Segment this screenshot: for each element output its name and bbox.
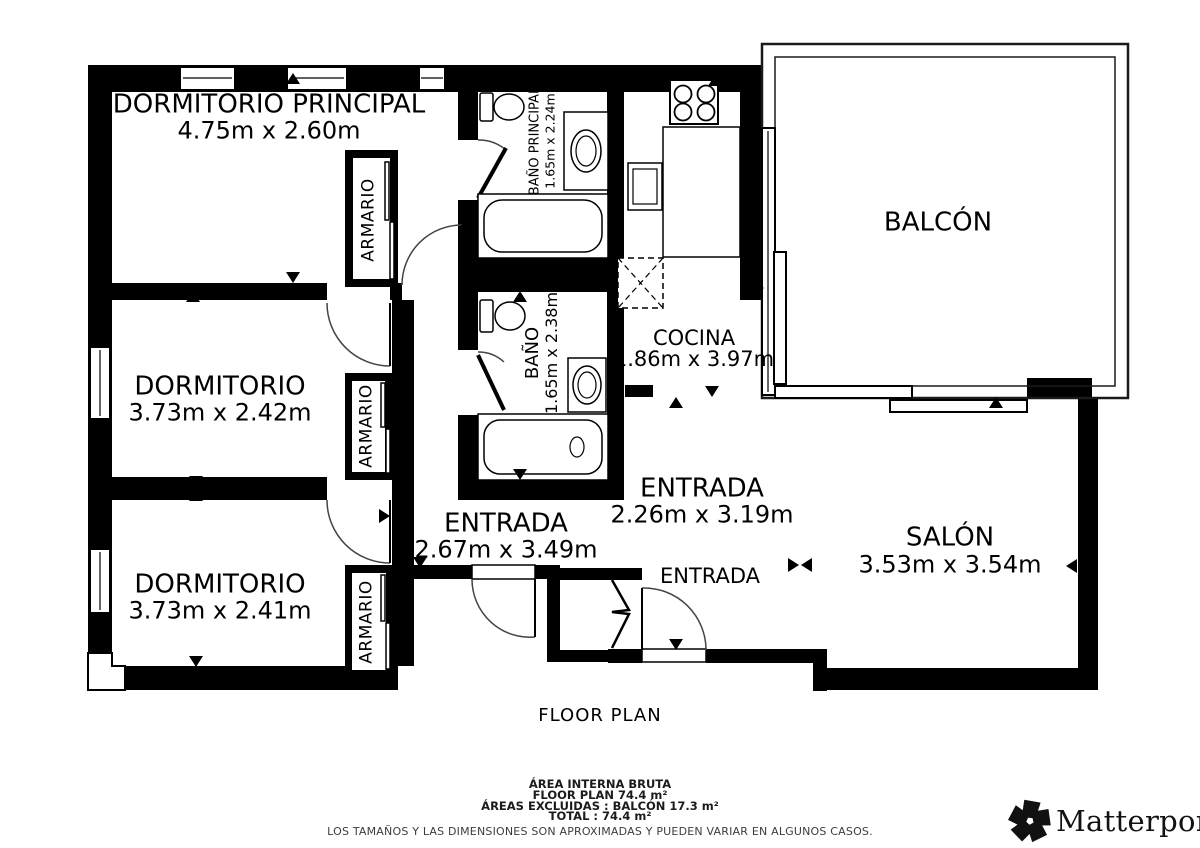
room-label-entrada-centro: ENTRADA (640, 474, 764, 503)
matterport-wordmark: Matterport® (1056, 804, 1200, 838)
bifold-door (612, 580, 629, 648)
toilet (480, 93, 524, 121)
floor-plan-page: DORMITORIO PRINCIPAL 4.75m x 2.60m DORMI… (0, 0, 1200, 848)
closet-label-armario-2: ARMARIO (357, 384, 376, 467)
room-label-dormitorio-principal: DORMITORIO PRINCIPAL (113, 90, 425, 119)
room-dims-cocina: 1.86m x 3.97m (614, 348, 774, 372)
room-label-balcon: BALCÓN (884, 208, 992, 237)
closet-label-armario-1: ARMARIO (359, 178, 378, 261)
sink (568, 358, 606, 412)
bano-name: BAÑO (523, 292, 543, 414)
disclaimer: LOS TAMAÑOS Y LAS DIMENSIONES SON APROXI… (0, 825, 1200, 838)
room-dims-dormitorio-3: 3.73m x 2.41m (128, 598, 311, 625)
room-dims-salon: 3.53m x 3.54m (858, 552, 1041, 579)
room-label-bano: BAÑO 1.65m x 2.38m (523, 292, 561, 414)
floor-plan-title: FLOOR PLAN (538, 706, 661, 726)
bathtub (478, 194, 608, 258)
room-label-dormitorio-2: DORMITORIO (134, 372, 305, 401)
bathtub (478, 414, 608, 480)
room-label-entrada-hall: ENTRADA (444, 509, 568, 538)
toilet (480, 300, 525, 332)
washer-sink (564, 112, 608, 190)
bano-dims: 1.65m x 2.38m (543, 292, 561, 414)
room-label-salon: SALÓN (906, 523, 994, 552)
counter (663, 127, 740, 257)
stove (670, 80, 718, 124)
room-dims-dormitorio-principal: 4.75m x 2.60m (177, 118, 360, 145)
bano-principal-name: BAÑO PRINCIPAL (529, 87, 544, 195)
room-label-dormitorio-3: DORMITORIO (134, 570, 305, 599)
brand-name: Matterport (1056, 804, 1200, 838)
room-dims-dormitorio-2: 3.73m x 2.42m (128, 400, 311, 427)
closet-label-armario-3: ARMARIO (357, 580, 376, 663)
room-dims-entrada-centro: 2.26m x 3.19m (610, 502, 793, 529)
appliance-space (618, 258, 663, 308)
area-summary: ÁREA INTERNA BRUTA FLOOR PLAN 74.4 m² ÁR… (0, 779, 1200, 838)
summary-total: TOTAL : 74.4 m² (0, 811, 1200, 822)
bano-principal-dims: 1.65m x 2.24m (543, 87, 557, 195)
oven (628, 163, 662, 210)
room-dims-entrada-hall: 2.67m x 3.49m (414, 537, 597, 564)
corner-step (88, 653, 125, 690)
room-label-entrada-puerta: ENTRADA (660, 565, 760, 589)
room-label-bano-principal: BAÑO PRINCIPAL 1.65m x 2.24m (529, 87, 558, 195)
